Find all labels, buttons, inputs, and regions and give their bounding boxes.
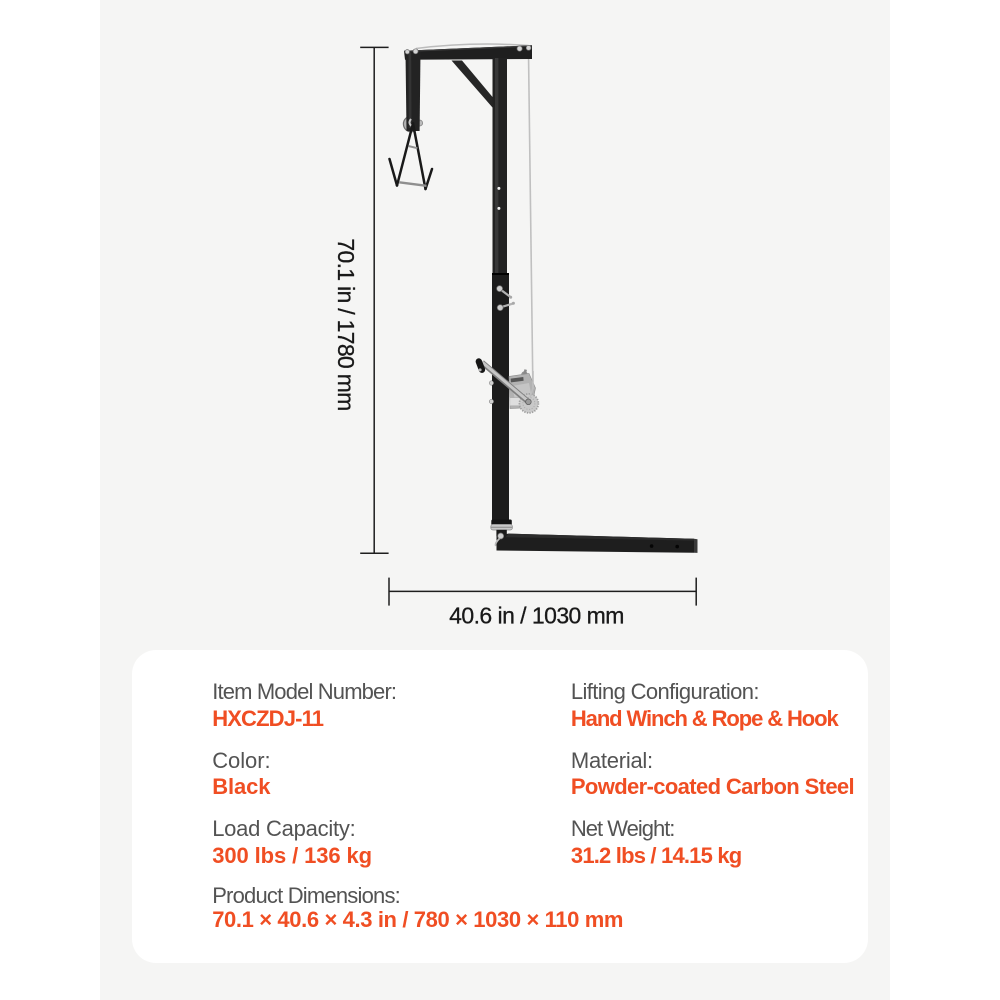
svg-text:70.1 in / 1780 mm: 70.1 in / 1780 mm: [333, 238, 359, 410]
svg-text:40.6 in / 1030 mm: 40.6 in / 1030 mm: [449, 603, 624, 629]
